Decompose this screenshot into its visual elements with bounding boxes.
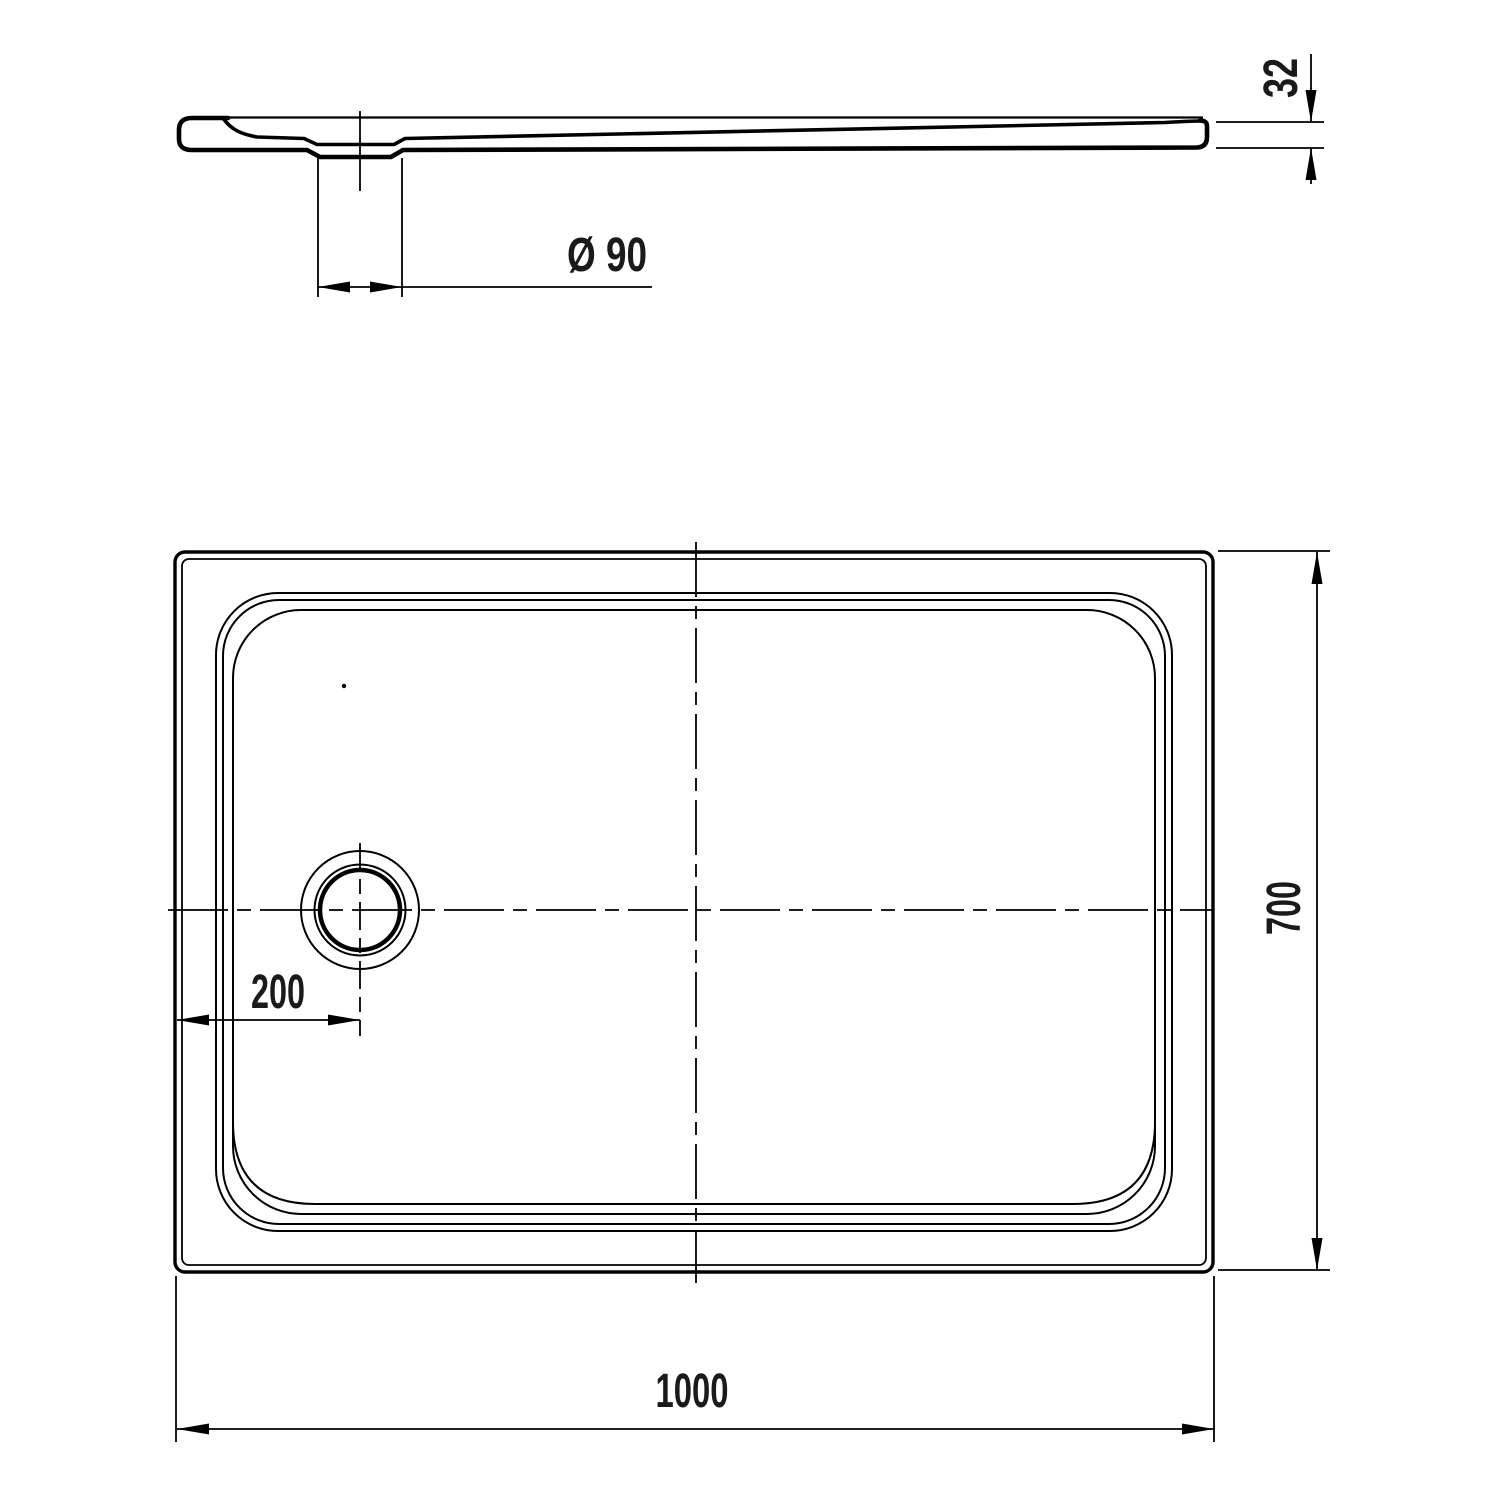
- technical-drawing: 32 Ø 90: [0, 0, 1500, 1500]
- floor-reference-dot: [342, 684, 346, 688]
- plan-rim-line-3: [233, 610, 1155, 1214]
- drain-offset-label: 200: [251, 966, 305, 1019]
- drain-arrow-right: [370, 282, 402, 293]
- thickness-arrow-up: [1306, 148, 1317, 180]
- width-label: 1000: [656, 1365, 729, 1418]
- profile-basin-floor: [224, 120, 1200, 145]
- dim-drain-offset: 200: [177, 966, 360, 1026]
- thickness-label: 32: [1255, 58, 1308, 98]
- dim-drain-diameter: Ø 90: [318, 158, 652, 297]
- drawing-canvas: 32 Ø 90: [0, 0, 1500, 1500]
- width-arrow-left: [177, 1424, 209, 1435]
- plan-rim-line-2: [223, 600, 1165, 1224]
- dim-depth: 700: [1218, 551, 1330, 1270]
- drain-arrow-left: [318, 282, 350, 293]
- dim-width: 1000: [176, 1276, 1214, 1442]
- side-profile-view: [179, 111, 1207, 191]
- plan-floor-outline: [233, 975, 1155, 1204]
- plan-outer-edge: [175, 552, 1213, 1272]
- plan-view: [168, 542, 1213, 1283]
- depth-arrow-bottom: [1312, 1238, 1323, 1270]
- plan-outer-edge-inner-line: [182, 559, 1206, 1265]
- drain-diameter-label: Ø 90: [567, 229, 647, 282]
- offset-arrow-right: [328, 1015, 360, 1026]
- dim-thickness: 32: [1216, 54, 1324, 184]
- depth-label: 700: [1258, 881, 1311, 935]
- width-arrow-right: [1182, 1424, 1214, 1435]
- depth-arrow-top: [1312, 552, 1323, 584]
